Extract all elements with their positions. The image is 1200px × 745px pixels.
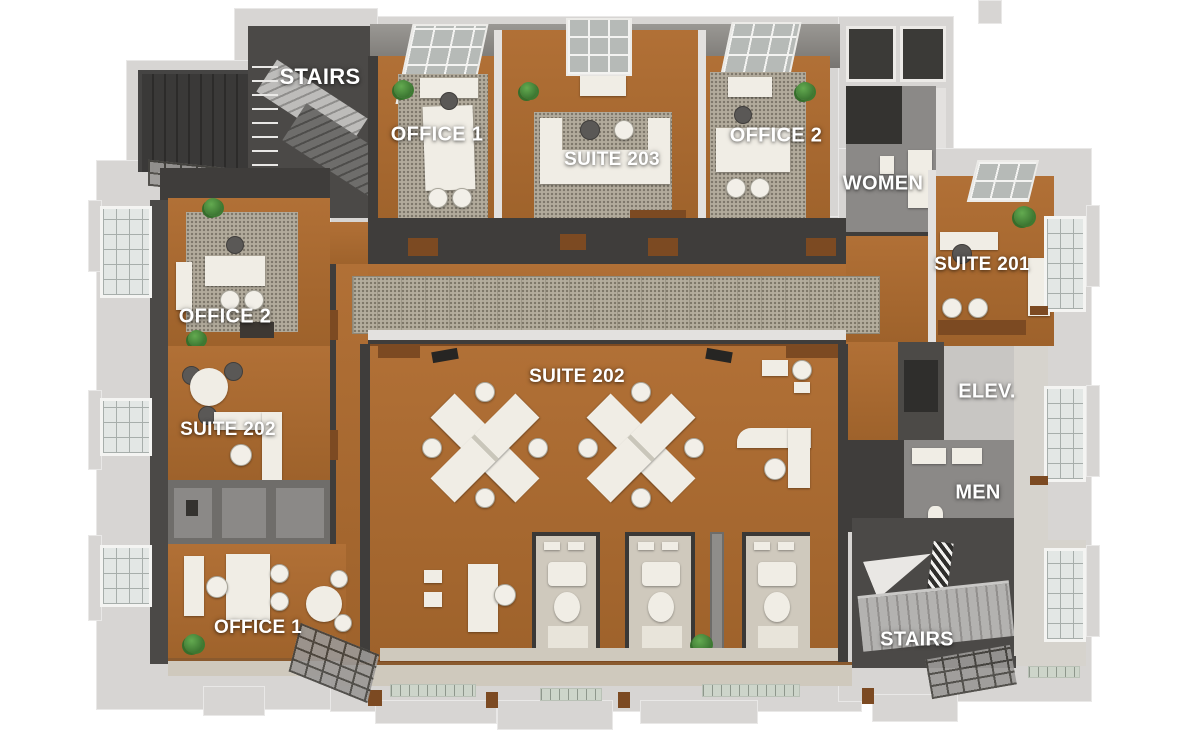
chair bbox=[330, 570, 348, 588]
window-sill bbox=[1030, 476, 1048, 485]
room-label-stairs-bottom: STAIRS bbox=[880, 629, 954, 652]
elevator-door bbox=[904, 360, 938, 412]
closet-cell bbox=[276, 488, 324, 538]
room-label-suite202-main: SUITE 202 bbox=[529, 366, 625, 388]
guest-chair bbox=[726, 178, 746, 198]
wall-gap bbox=[368, 690, 382, 706]
wall-face bbox=[150, 480, 168, 544]
cubicle-pad bbox=[662, 542, 678, 550]
door bbox=[560, 234, 586, 250]
room-label-office1-left: OFFICE 1 bbox=[214, 617, 302, 639]
cubicle-pad bbox=[424, 570, 442, 583]
fixture-bowl bbox=[764, 592, 790, 622]
guest-chair bbox=[750, 178, 770, 198]
office-chair bbox=[631, 488, 651, 508]
office-chair bbox=[422, 438, 442, 458]
fixture-bowl bbox=[648, 592, 674, 622]
utility-cell bbox=[900, 26, 946, 82]
south-facade-band bbox=[340, 662, 852, 686]
skylight-window bbox=[566, 18, 632, 76]
office-chair bbox=[684, 438, 704, 458]
room-label-suite203: SUITE 203 bbox=[564, 149, 660, 171]
console-table bbox=[938, 320, 1026, 335]
room-label-office2-left: OFFICE 2 bbox=[179, 306, 271, 329]
basin bbox=[642, 562, 680, 586]
cubicle-pad bbox=[424, 592, 442, 607]
guest-chair bbox=[428, 188, 448, 208]
chair bbox=[334, 614, 352, 632]
office-chair bbox=[494, 584, 516, 606]
plant bbox=[394, 80, 412, 98]
bay-window bbox=[1044, 216, 1086, 312]
office-chair bbox=[578, 438, 598, 458]
toilet-stalls bbox=[846, 86, 902, 144]
plant bbox=[204, 198, 222, 216]
cubicle-pad bbox=[754, 542, 770, 550]
cubicle-pad bbox=[544, 542, 560, 550]
guest-chair bbox=[968, 298, 988, 318]
wall-bump bbox=[1086, 545, 1100, 637]
basin bbox=[548, 562, 586, 586]
wall-top-right-cap bbox=[978, 0, 1002, 24]
wall-bump bbox=[1086, 385, 1100, 477]
side-table bbox=[794, 382, 810, 393]
wall-bump bbox=[203, 686, 265, 716]
chair bbox=[224, 362, 243, 381]
door bbox=[648, 238, 678, 256]
fixture-bowl bbox=[554, 592, 580, 622]
plant bbox=[188, 330, 205, 347]
credenza bbox=[176, 262, 192, 310]
office-chair bbox=[734, 106, 752, 124]
office-chair bbox=[440, 92, 458, 110]
office-chair bbox=[206, 576, 228, 598]
side-table bbox=[762, 360, 788, 376]
window-sill bbox=[390, 684, 476, 697]
wall-bump bbox=[640, 700, 758, 724]
room-label-suite201: SUITE 201 bbox=[934, 254, 1030, 276]
sofa-inset bbox=[562, 118, 648, 150]
office-chair bbox=[614, 120, 634, 140]
suite202-north-wall bbox=[368, 330, 846, 340]
room-label-stairs-top: STAIRS bbox=[280, 64, 361, 90]
window bbox=[100, 206, 152, 298]
desk bbox=[226, 554, 270, 620]
room-label-men: MEN bbox=[955, 482, 1000, 505]
office-chair bbox=[475, 488, 495, 508]
bay-window bbox=[1044, 386, 1086, 482]
cubicle-pad bbox=[568, 542, 584, 550]
wall-face bbox=[150, 544, 168, 664]
wall-divider bbox=[494, 30, 502, 232]
window-sill bbox=[1028, 666, 1080, 678]
wall-face bbox=[150, 346, 168, 480]
bay-window bbox=[1044, 548, 1086, 642]
wall-face bbox=[150, 200, 168, 346]
desk bbox=[205, 256, 265, 286]
window-sill bbox=[1030, 306, 1048, 315]
cubicle-partition bbox=[710, 532, 724, 660]
fixture bbox=[186, 500, 198, 516]
wall-bump bbox=[1086, 205, 1100, 287]
wall-divider bbox=[698, 30, 706, 232]
sink-counter bbox=[952, 448, 982, 464]
office-chair bbox=[475, 382, 495, 402]
plant bbox=[1014, 206, 1034, 226]
closet-cell bbox=[222, 488, 266, 538]
stair-railing bbox=[252, 64, 278, 180]
round-table bbox=[190, 368, 228, 406]
credenza bbox=[184, 556, 204, 616]
door bbox=[330, 430, 338, 460]
guest-chair bbox=[452, 188, 472, 208]
credenza bbox=[580, 76, 626, 96]
sink-counter bbox=[912, 448, 946, 464]
wall-divider bbox=[368, 56, 378, 232]
left-wing-north-wall bbox=[160, 168, 330, 200]
room-label-office1-top: OFFICE 1 bbox=[391, 124, 483, 147]
wall-bump bbox=[872, 694, 958, 722]
wall-gap bbox=[618, 692, 630, 708]
window-sill bbox=[540, 688, 602, 701]
cubicle-pad bbox=[638, 542, 654, 550]
wall-face bbox=[360, 344, 370, 662]
guest-chair bbox=[942, 298, 962, 318]
hand-dryer bbox=[880, 156, 894, 174]
office-chair bbox=[764, 458, 786, 480]
console-table bbox=[378, 346, 420, 358]
chair bbox=[792, 360, 812, 380]
room-label-elevator: ELEV. bbox=[958, 381, 1015, 404]
basin bbox=[758, 562, 796, 586]
plant bbox=[796, 82, 814, 100]
plant bbox=[184, 634, 203, 653]
office-chair bbox=[631, 382, 651, 402]
garage-roof bbox=[138, 70, 264, 172]
corridor-right-lower bbox=[846, 342, 900, 440]
wall-bump bbox=[497, 700, 613, 730]
floor-plan: STAIRS OFFICE 1 SUITE 203 OFFICE 2 WOMEN… bbox=[0, 0, 1200, 745]
office-chair bbox=[226, 236, 244, 254]
suite-walkway bbox=[380, 648, 838, 661]
guest-chair bbox=[270, 564, 289, 583]
room-label-women: WOMEN bbox=[843, 173, 923, 196]
window bbox=[100, 398, 152, 456]
wall-gap bbox=[862, 688, 874, 704]
room-label-suite202-left: SUITE 202 bbox=[180, 419, 276, 441]
carpet-runner bbox=[352, 276, 880, 334]
cubicle-pad bbox=[778, 542, 794, 550]
office-chair bbox=[230, 444, 252, 466]
office-chair bbox=[528, 438, 548, 458]
window bbox=[100, 545, 152, 607]
wall-bump bbox=[375, 700, 497, 724]
skylight-window bbox=[967, 160, 1039, 202]
wall-gap bbox=[486, 692, 498, 708]
utility-cell bbox=[846, 26, 896, 82]
door bbox=[806, 238, 836, 256]
window-sill bbox=[702, 684, 800, 697]
door bbox=[408, 238, 438, 256]
plant bbox=[520, 82, 537, 99]
room-label-office2-top: OFFICE 2 bbox=[730, 125, 822, 148]
guest-chair bbox=[270, 592, 289, 611]
credenza bbox=[728, 77, 772, 97]
console-table bbox=[786, 346, 838, 358]
l-desk bbox=[788, 428, 810, 488]
desk bbox=[423, 105, 476, 191]
door bbox=[330, 310, 338, 340]
